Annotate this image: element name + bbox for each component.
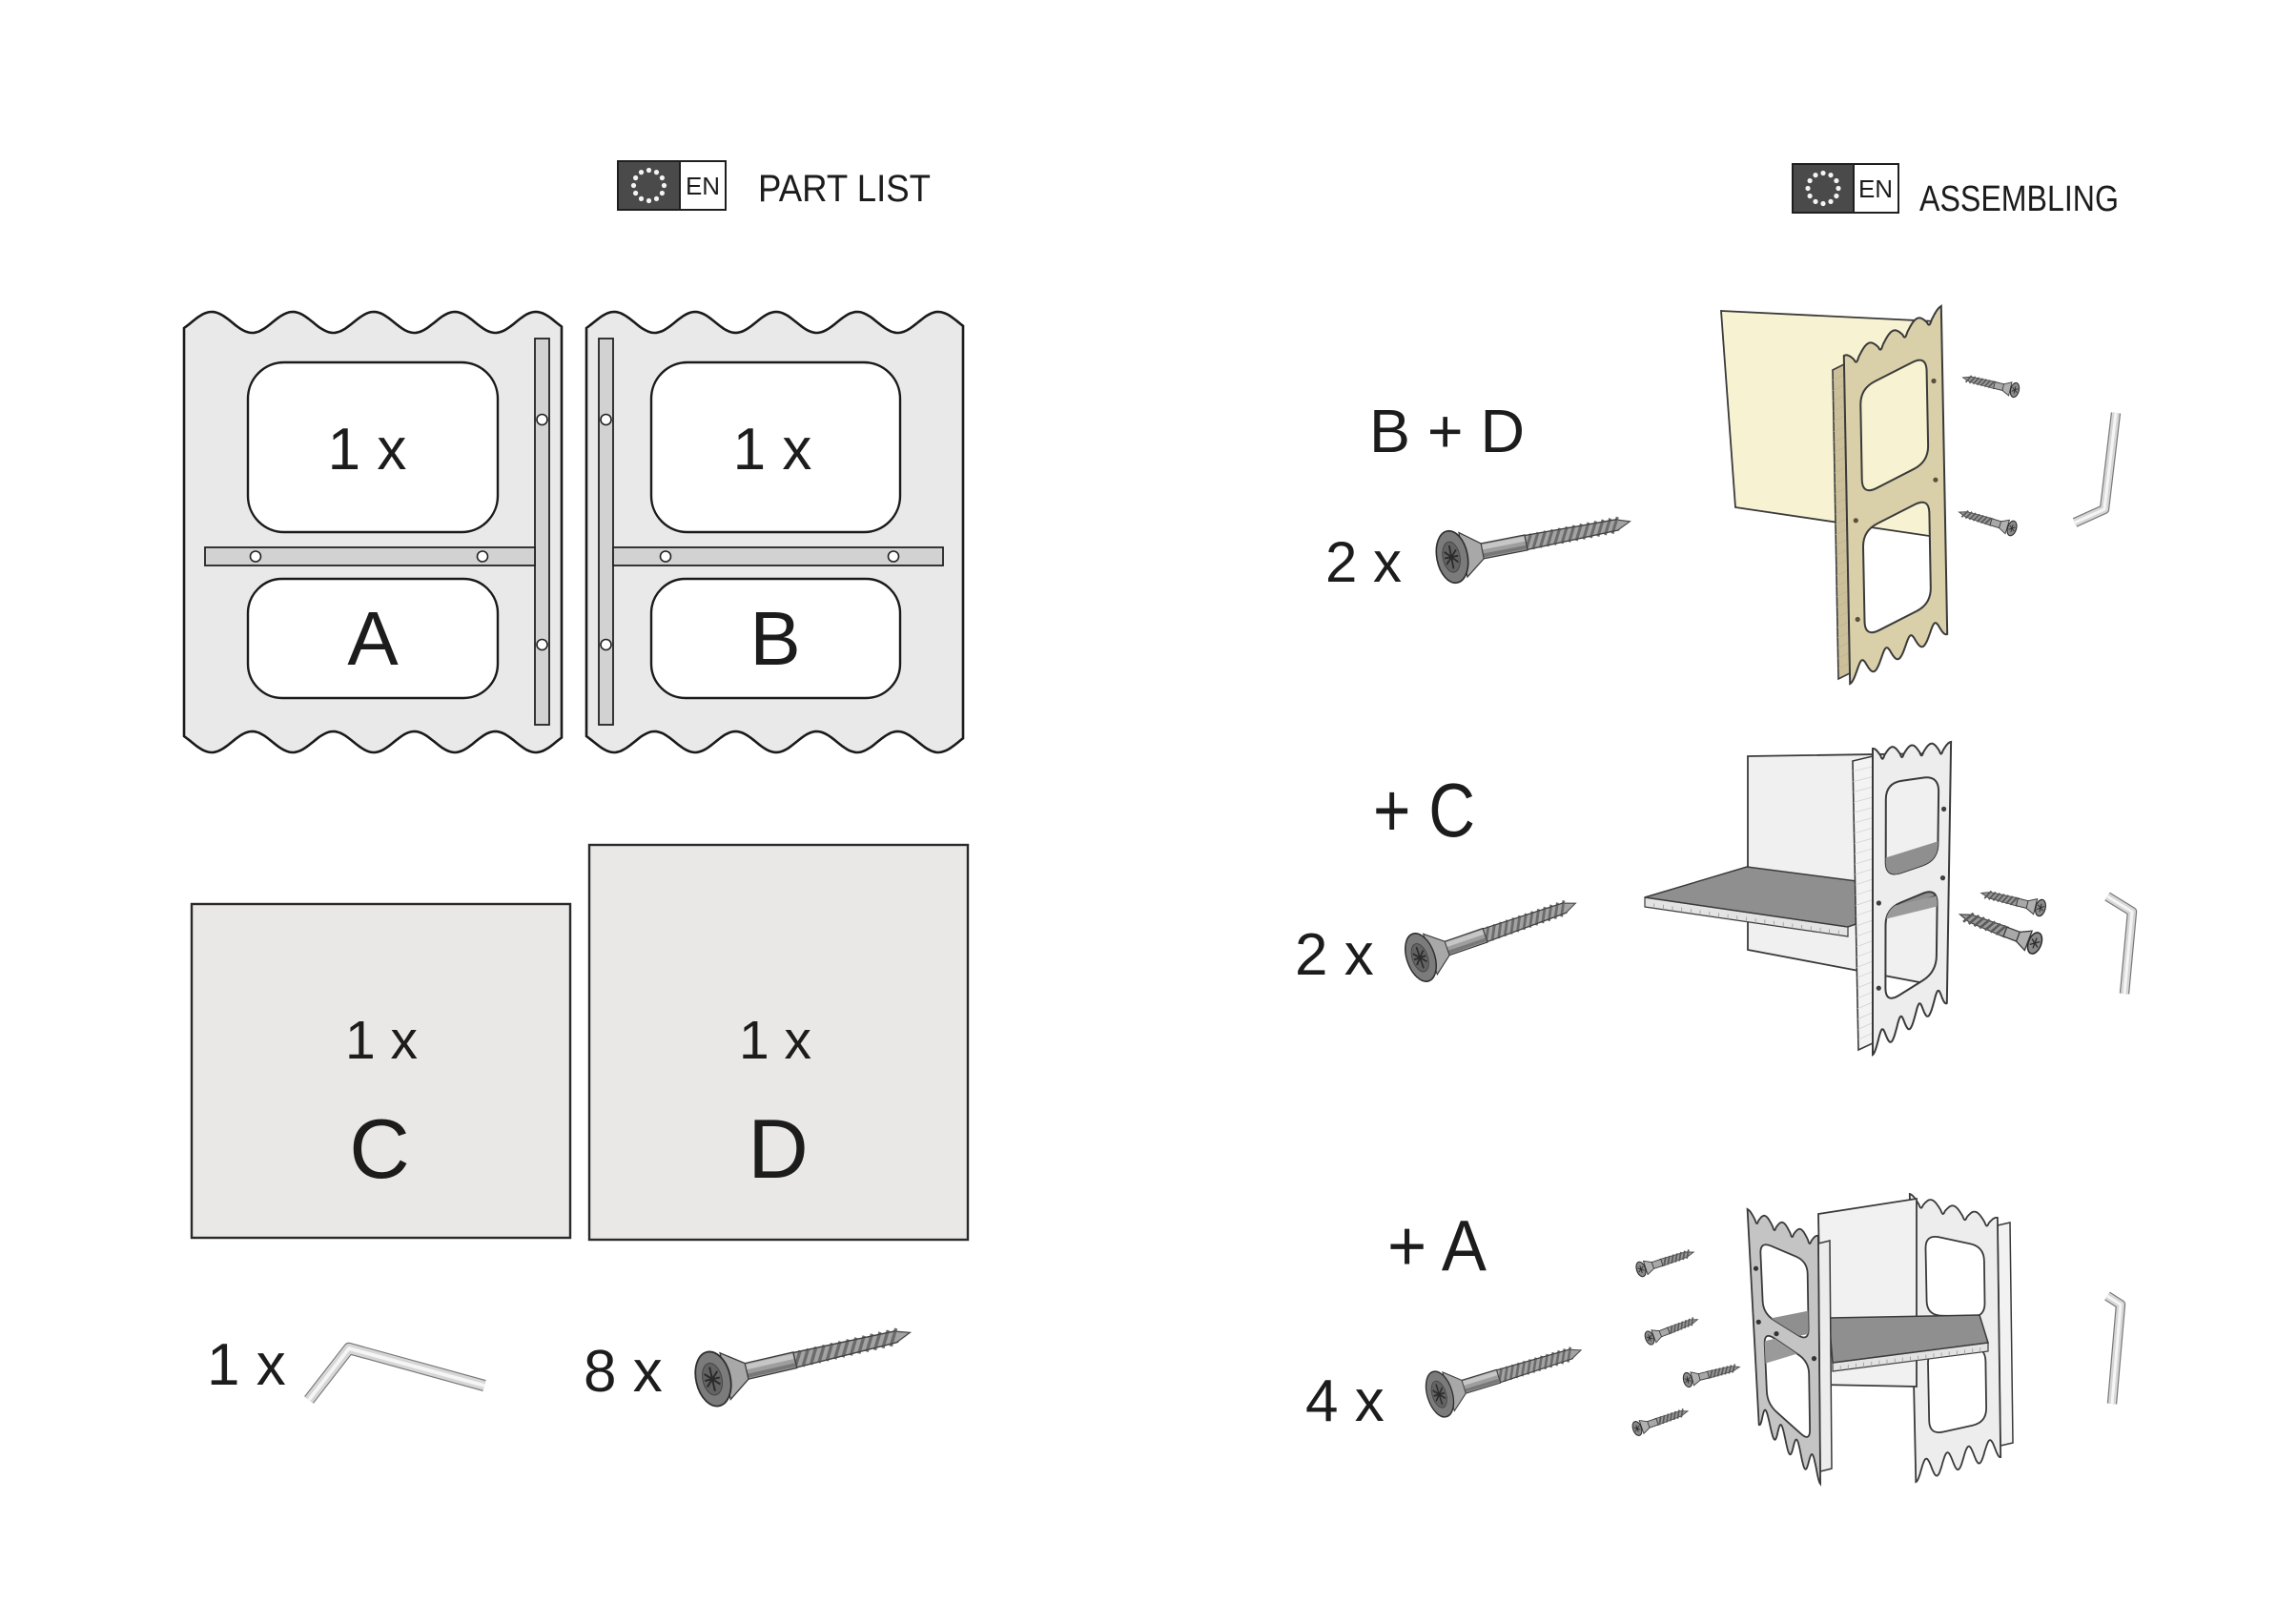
svg-text:B: B	[749, 596, 800, 681]
svg-text:1 x: 1 x	[739, 1010, 811, 1071]
svg-text:+ A: + A	[1387, 1205, 1487, 1285]
svg-text:1 x: 1 x	[345, 1010, 418, 1071]
svg-text:1 x: 1 x	[207, 1332, 286, 1398]
svg-text:PART LIST: PART LIST	[758, 168, 931, 210]
svg-text:8 x: 8 x	[584, 1339, 663, 1405]
svg-text:C: C	[349, 1101, 410, 1196]
svg-text:EN: EN	[686, 172, 720, 200]
svg-text:D: D	[748, 1101, 809, 1196]
svg-text:A: A	[347, 596, 399, 681]
svg-text:+ C: + C	[1373, 768, 1475, 853]
svg-text:1 x: 1 x	[328, 417, 407, 483]
svg-text:ASSEMBLING: ASSEMBLING	[1919, 179, 2119, 219]
svg-text:2 x: 2 x	[1325, 530, 1402, 594]
svg-text:1 x: 1 x	[733, 417, 812, 483]
svg-text:4 x: 4 x	[1305, 1368, 1385, 1434]
svg-text:EN: EN	[1858, 175, 1893, 203]
svg-text:2 x: 2 x	[1295, 922, 1374, 988]
svg-text:B + D: B + D	[1369, 397, 1525, 465]
